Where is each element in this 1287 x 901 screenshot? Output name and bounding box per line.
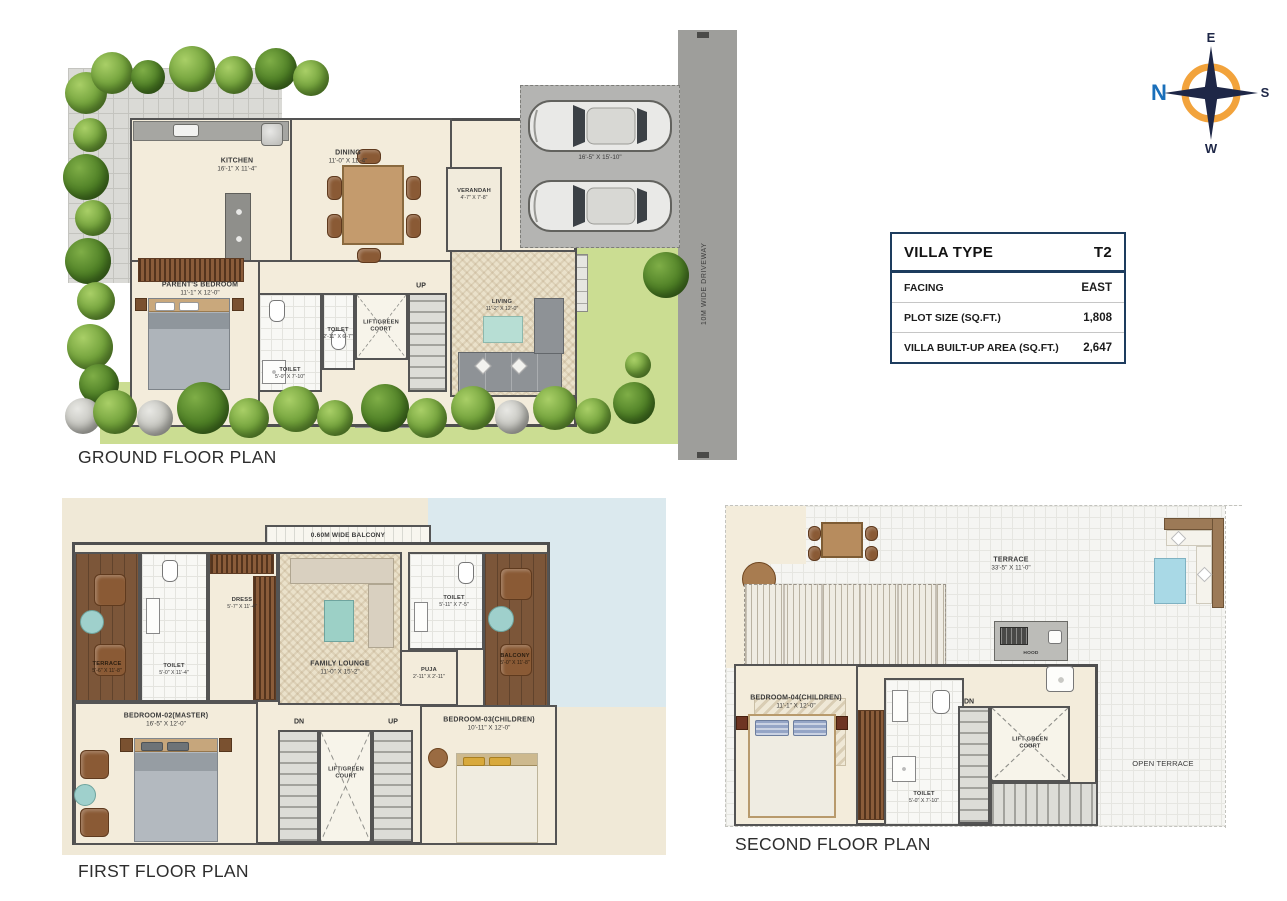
bed-pillow — [463, 757, 485, 766]
toilet-main-label: TOILET 5'-0" X 7'-10" — [275, 367, 305, 381]
grill-icon — [1000, 627, 1028, 645]
stairs — [408, 293, 447, 392]
compass-needle-icon — [1164, 86, 1258, 100]
second-floor-title: SECOND FLOOR PLAN — [735, 834, 931, 855]
side-table — [74, 784, 96, 806]
nightstand — [135, 298, 147, 311]
tree-icon — [137, 400, 173, 436]
dn-label: DN — [964, 699, 974, 706]
tree-icon — [91, 52, 133, 94]
tree-icon — [255, 48, 297, 90]
driveway-mark — [697, 452, 709, 458]
coffee-table — [324, 600, 354, 642]
tree-icon — [293, 60, 329, 96]
tree-icon — [575, 398, 611, 434]
bed-pillow — [179, 302, 199, 311]
bedroom-master-label: BEDROOM-02(MASTER) 16'-5" X 12'-0" — [124, 711, 209, 728]
dining-chair — [327, 176, 342, 200]
tree-icon — [177, 382, 229, 434]
living-label: LIVING 11'-2" X 12'-0" — [486, 299, 518, 313]
plunge-table — [1154, 558, 1186, 604]
dining-table — [342, 165, 404, 245]
kitchen-label: KITCHEN 16'-1" X 11'-4" — [217, 156, 256, 173]
villa-type-label: VILLA TYPE — [904, 244, 993, 261]
tree-icon — [63, 154, 109, 200]
outdoor-chair — [865, 546, 878, 561]
toilet-children-label: TOILET 5'-11" X 7'-5" — [439, 595, 469, 609]
armchair — [80, 750, 109, 779]
dn-label: DN — [294, 719, 304, 726]
bed — [148, 298, 230, 390]
toilet-master-label: TOILET 5'-0" X 11'-4" — [159, 663, 189, 677]
bed — [134, 738, 218, 842]
balcony-strip-label: 0.60M WIDE BALCONY — [311, 532, 385, 540]
outdoor-sofa-frame — [1212, 518, 1224, 608]
hood-label: HOOD — [1023, 651, 1038, 657]
table-row: PLOT SIZE (SQ.FT.) 1,808 — [892, 303, 1124, 333]
outdoor-chair — [808, 546, 821, 561]
court-cross-icon — [321, 732, 370, 841]
tree-icon — [643, 252, 689, 298]
toilet-icon — [458, 562, 474, 584]
tree-icon — [75, 200, 111, 236]
balcony-label: BALCONY 5'-0" X 11'-8" — [500, 653, 530, 667]
bed — [748, 714, 836, 818]
stairs — [958, 706, 990, 824]
tree-icon — [77, 282, 115, 320]
terrace-label: TERRACE 5'-6" X 11'-8" — [92, 661, 122, 675]
tree-icon — [215, 56, 253, 94]
dining-chair — [406, 214, 421, 238]
shower-icon — [892, 756, 916, 782]
floor-plan-sheet: 10M WIDE DRIVEWAY — [0, 0, 1287, 901]
car-icon — [525, 172, 675, 240]
compass-n: N — [1151, 80, 1167, 105]
chair-icon — [428, 748, 448, 768]
dining-chair — [406, 176, 421, 200]
balcony-table — [488, 606, 514, 632]
bed-pillow — [141, 742, 163, 751]
kitchen-sink — [173, 124, 199, 137]
verandah-label: VERANDAH 4'-7" X 7'-8" — [457, 188, 491, 202]
bedroom-children-label: BEDROOM-04(CHILDREN) 11'-1" X 12'-0" — [750, 693, 842, 710]
washer-icon — [1046, 666, 1074, 692]
balcony-chair — [500, 568, 532, 600]
dress-label: DRESS 5'-7" X 11'-4" — [227, 597, 257, 611]
tree-icon — [229, 398, 269, 438]
sink-icon — [1048, 630, 1062, 644]
vanity-icon — [414, 602, 428, 632]
tree-icon — [67, 324, 113, 370]
up-label: UP — [388, 719, 398, 726]
dining-chair — [327, 214, 342, 238]
villa-info-table: VILLA TYPE T2 FACING EAST PLOT SIZE (SQ.… — [890, 232, 1126, 364]
nightstand — [232, 298, 244, 311]
tree-icon — [625, 352, 651, 378]
bed-pillow — [755, 720, 789, 736]
dining-chair — [357, 248, 381, 263]
compass: E S W N — [1150, 32, 1272, 154]
terrace-label: TERRACE 33'-5" X 11'-0" — [991, 555, 1030, 572]
compass-w: W — [1205, 141, 1218, 154]
vanity-icon — [892, 690, 908, 722]
tree-icon — [495, 400, 529, 434]
vanity-icon — [146, 598, 160, 634]
toilet-icon — [932, 690, 950, 714]
stairs — [372, 730, 413, 843]
puja-label: PUJA 2'-11" X 2'-11" — [413, 667, 445, 681]
wardrobe — [210, 554, 274, 574]
tree-icon — [65, 238, 111, 284]
parents-bedroom-label: PARENT'S BEDROOM 11'-1" X 12'-0" — [162, 280, 238, 297]
bed — [456, 753, 538, 843]
toilet-label: TOILET 5'-0" X 7'-10" — [909, 791, 939, 805]
terrace-table — [80, 610, 104, 634]
stairs — [278, 730, 319, 843]
tree-icon — [93, 390, 137, 434]
lift-court-label: LIFT GREEN COURT — [1003, 737, 1057, 752]
nightstand — [219, 738, 232, 752]
table-row: FACING EAST — [892, 273, 1124, 303]
nightstand — [836, 716, 848, 730]
ground-floor-plot: 10M WIDE DRIVEWAY — [65, 30, 737, 460]
bed-pillow — [155, 302, 175, 311]
toilet-icon — [269, 300, 285, 322]
ground-floor-title: GROUND FLOOR PLAN — [78, 447, 277, 468]
driveway-mark — [697, 32, 709, 38]
bed-pillow — [167, 742, 189, 751]
bedroom-children-label: BEDROOM-03(CHILDREN) 10'-11" X 12'-0" — [443, 715, 535, 732]
tree-icon — [613, 382, 655, 424]
villa-type-value: T2 — [1094, 244, 1112, 261]
tree-icon — [131, 60, 165, 94]
bed-fold — [135, 753, 217, 771]
wardrobe — [253, 576, 276, 700]
tree-icon — [317, 400, 353, 436]
bed-pillow — [793, 720, 827, 736]
sofa — [290, 558, 394, 584]
driveway-label: 10M WIDE DRIVEWAY — [701, 175, 708, 325]
tree-icon — [169, 46, 215, 92]
up-label: UP — [416, 283, 426, 290]
armchair — [80, 808, 109, 837]
lift-court-label: LIFT/GREEN COURT — [354, 320, 408, 335]
tree-icon — [361, 384, 409, 432]
panel-gutter — [1225, 506, 1243, 828]
bed-fold — [149, 313, 229, 329]
wardrobe — [858, 710, 884, 820]
nightstand — [120, 738, 133, 752]
outdoor-chair — [865, 526, 878, 541]
sofa-chaise — [534, 298, 564, 354]
car-park-label: 16'-5" X 15'-10" — [578, 154, 621, 162]
sofa-chaise — [368, 584, 394, 648]
outdoor-dining-table — [821, 522, 863, 558]
outdoor-chair — [808, 526, 821, 541]
terrace-chair — [94, 574, 126, 606]
wardrobe — [138, 258, 244, 282]
first-floor-panel: 0.60M WIDE BALCONY — [62, 498, 666, 855]
tree-icon — [451, 386, 495, 430]
lift-court-label: LIFT/GREEN COURT — [319, 767, 373, 782]
car-icon — [525, 92, 675, 160]
living-rug — [483, 316, 523, 343]
tree-icon — [73, 118, 107, 152]
villa-table-header: VILLA TYPE T2 — [892, 234, 1124, 273]
fridge-icon — [261, 123, 283, 146]
family-lounge-label: FAMILY LOUNGE 11'-0" X 15'-2" — [310, 659, 369, 676]
deck-flooring — [744, 584, 946, 666]
bed-pillow — [489, 757, 511, 766]
tree-icon — [273, 386, 319, 432]
table-row: VILLA BUILT-UP AREA (SQ.FT.) 2,647 — [892, 333, 1124, 362]
tree-icon — [407, 398, 447, 438]
compass-s: S — [1261, 85, 1270, 100]
second-floor-panel: HOOD TERRACE 33'-5" X 11'-0" — [725, 505, 1242, 827]
compass-e: E — [1207, 32, 1216, 45]
stairs — [990, 782, 1098, 826]
lift-green-court — [319, 730, 372, 843]
open-terrace-label: OPEN TERRACE — [1132, 759, 1193, 769]
verandah-room — [446, 167, 502, 252]
toilet-icon — [162, 560, 178, 582]
nightstand — [736, 716, 748, 730]
dining-label: DINING 11'-0" X 11'-4" — [329, 148, 368, 165]
toilet-small-label: TOILET 2'-11" X 6'-7" — [323, 327, 353, 341]
first-floor-title: FIRST FLOOR PLAN — [78, 861, 249, 882]
tree-icon — [533, 386, 577, 430]
